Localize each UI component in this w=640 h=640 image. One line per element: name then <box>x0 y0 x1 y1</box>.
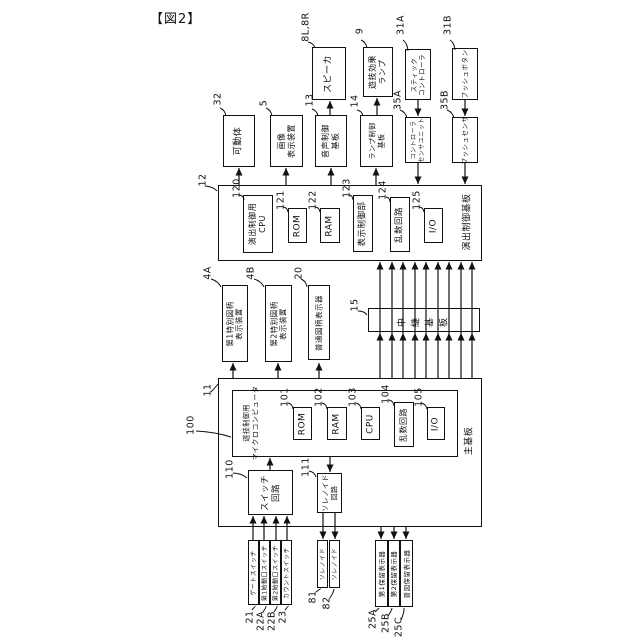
arrowhead <box>469 333 476 341</box>
ref-number-123: 123 <box>342 178 353 198</box>
arrowhead <box>373 168 380 176</box>
arrowhead <box>377 333 384 341</box>
arrowhead <box>412 333 419 341</box>
ref-number-35a: 35A <box>393 90 404 110</box>
ref-number-8l8r: 8L,8R <box>301 12 312 42</box>
ref-number-105: 105 <box>414 387 425 407</box>
ref-number-31b: 31B <box>443 15 454 35</box>
box-second-special-symbol-display: 第2特別図柄 表示装置 <box>265 285 292 362</box>
arrowhead <box>328 168 335 176</box>
box-label: 表示制御部 <box>358 201 369 246</box>
box-label: I/O <box>430 416 441 430</box>
ref-number-23: 23 <box>278 610 289 623</box>
effect-board-label: 演出制御基板 <box>462 193 473 250</box>
box-solenoid-81: ソレノイド <box>317 540 328 588</box>
box-normal-hold-display: 普図保留表示器 <box>400 540 413 607</box>
box-main-rom: ROM <box>293 407 312 440</box>
arrowhead <box>316 363 323 371</box>
box-sound-control-board: 音声制御 基板 <box>315 115 347 167</box>
ref-number-120: 120 <box>232 178 243 198</box>
rotated-char: 中 <box>397 313 408 327</box>
box-main-ram: RAM <box>327 407 347 440</box>
ref-number-110: 110 <box>225 459 236 479</box>
arrowhead <box>332 532 339 540</box>
arrowhead <box>469 262 476 270</box>
box-label: 第2始動口スイッチ <box>272 544 280 600</box>
patent-figure-2: 【図2】 スピーカ遊技効果 ランプスティック コントローラプッシュボタン可動体画… <box>0 0 640 640</box>
rotated-char: 板 <box>439 313 450 327</box>
box-relay-board: 中継基板 <box>368 308 480 332</box>
reference-leader <box>358 311 367 315</box>
box-count-switch: カウントスイッチ <box>281 540 292 605</box>
ref-number-25a: 25A <box>368 609 379 629</box>
box-label: 普通図柄表示器 <box>314 295 323 351</box>
box-image-display-device: 画像 表示装置 <box>270 115 303 167</box>
box-label: ランプ制御 基板 <box>368 122 386 159</box>
box-label: 第1特別図柄 表示装置 <box>226 301 245 346</box>
box-first-special-symbol-display: 第1特別図柄 表示装置 <box>222 285 248 362</box>
ref-number-122: 122 <box>308 190 319 210</box>
ref-number-125: 125 <box>412 190 423 210</box>
ref-number-11: 11 <box>203 383 214 396</box>
arrowhead <box>423 333 430 341</box>
box-label: スイッチ 回路 <box>260 474 281 510</box>
box-label: ソレノイド 回路 <box>321 474 339 512</box>
box-main-random-circuit: 乱数回路 <box>394 402 414 447</box>
box-effect-ram: RAM <box>320 208 340 243</box>
ref-number-5: 5 <box>259 100 270 107</box>
box-label: 可動体 <box>233 127 244 156</box>
box-stick-controller: スティック コントローラ <box>405 49 431 100</box>
box-solenoid-circuit: ソレノイド 回路 <box>317 473 342 513</box>
box-label: CPU <box>365 414 376 434</box>
ref-number-100: 100 <box>186 415 197 435</box>
box-label: 第2特別図柄 表示装置 <box>269 301 288 346</box>
reference-leader <box>252 606 255 610</box>
arrowhead <box>458 333 465 341</box>
box-first-start-switch: 第1始動口スイッチ <box>259 540 270 605</box>
box-effect-control-cpu: 演出制御用 CPU <box>243 195 273 253</box>
reference-leader <box>254 279 264 287</box>
ref-number-25b: 25B <box>381 613 392 633</box>
box-label: 乱数回路 <box>395 206 406 242</box>
ref-number-103: 103 <box>348 387 359 407</box>
box-movable-body: 可動体 <box>223 115 255 167</box>
box-label: ROM <box>292 214 303 237</box>
box-effect-rom: ROM <box>288 208 307 243</box>
box-label: RAM <box>331 413 342 434</box>
arrowhead <box>400 262 407 270</box>
arrowhead <box>236 168 243 176</box>
ref-number-82: 82 <box>322 596 333 609</box>
ref-number-14: 14 <box>350 94 361 107</box>
box-switch-circuit: スイッチ 回路 <box>248 470 293 515</box>
box-speaker: スピーカ <box>312 47 346 100</box>
arrowhead <box>320 532 327 540</box>
ref-number-13: 13 <box>305 93 316 106</box>
box-label: 第2保留表示器 <box>390 550 398 597</box>
box-push-button: プッシュボタン <box>452 48 478 100</box>
box-label: RAM <box>324 215 335 236</box>
ref-number-22b: 22B <box>267 611 278 631</box>
box-label: ROM <box>297 412 308 435</box>
arrowhead <box>230 363 237 371</box>
arrowhead <box>446 262 453 270</box>
box-label: ソレノイド <box>319 548 327 581</box>
box-label: 遊技効果 ランプ <box>368 55 388 89</box>
arrowhead <box>374 98 381 106</box>
box-game-effect-lamp: 遊技効果 ランプ <box>363 47 393 97</box>
box-label: 普図保留表示器 <box>402 549 410 598</box>
box-label: 音声制御 基板 <box>321 124 341 158</box>
box-normal-symbol-display: 普通図柄表示器 <box>308 285 330 360</box>
box-lamp-control-board: ランプ制御 基板 <box>360 115 393 167</box>
ref-number-35b: 35B <box>440 90 451 110</box>
ref-number-15: 15 <box>350 298 361 311</box>
box-controller-sensor-unit: コントローラ センサユニット <box>405 117 431 163</box>
figure-title: 【図2】 <box>150 8 201 27</box>
box-label: コントローラ センサユニット <box>411 117 426 163</box>
box-label: スピーカ <box>323 54 334 92</box>
box-label: ゲートスイッチ <box>250 550 258 596</box>
box-label: プッシュボタン <box>461 50 469 99</box>
arrowhead <box>327 101 334 109</box>
reference-leader <box>205 186 217 191</box>
box-push-sensor: プッシュセンサ <box>452 117 478 163</box>
arrowhead <box>415 177 422 185</box>
ref-number-4b: 4B <box>246 266 257 280</box>
arrowhead <box>400 333 407 341</box>
box-label: ソレノイド <box>331 548 339 581</box>
box-label: 第1保留表示器 <box>377 550 385 597</box>
ref-number-102: 102 <box>314 387 325 407</box>
arrowhead <box>389 333 396 341</box>
box-effect-io: I/O <box>424 208 443 243</box>
arrowhead <box>462 177 469 185</box>
ref-number-21: 21 <box>245 610 256 623</box>
ref-number-12: 12 <box>198 173 209 186</box>
arrowhead <box>378 532 385 540</box>
reference-leader <box>285 606 288 610</box>
box-solenoid-82: ソレノイド <box>329 540 340 588</box>
ref-number-25c: 25C <box>394 617 405 637</box>
rotated-char: 継 <box>411 313 422 327</box>
ref-number-31a: 31A <box>396 15 407 35</box>
box-main-io: I/O <box>427 407 445 440</box>
microcomputer-label: 遊技制御用 マイクロコンピュータ <box>242 386 260 461</box>
box-label: 画像 表示装置 <box>277 124 297 158</box>
box-label: 第1始動口スイッチ <box>261 544 269 600</box>
reference-leader <box>211 279 221 287</box>
ref-number-124: 124 <box>378 180 389 200</box>
box-first-hold-display: 第1保留表示器 <box>375 540 388 607</box>
arrowhead <box>389 262 396 270</box>
ref-number-121: 121 <box>276 190 287 210</box>
main-board-label: 主基板 <box>464 427 475 456</box>
arrowhead <box>415 109 422 117</box>
arrowhead <box>377 262 384 270</box>
box-label: スティック コントローラ <box>410 54 426 96</box>
box-second-start-switch: 第2始動口スイッチ <box>270 540 281 605</box>
arrowhead <box>403 532 410 540</box>
arrowhead <box>458 262 465 270</box>
box-display-control-unit: 表示制御部 <box>353 195 373 252</box>
ref-number-111: 111 <box>301 457 312 477</box>
box-label: プッシュセンサ <box>461 116 469 165</box>
box-label: 乱数回路 <box>399 408 409 442</box>
arrowhead <box>446 333 453 341</box>
box-label: 中継基板 <box>396 314 452 325</box>
box-effect-random-circuit: 乱数回路 <box>390 197 410 252</box>
ref-number-4a: 4A <box>203 266 214 280</box>
ref-number-81: 81 <box>308 590 319 603</box>
box-gate-switch: ゲートスイッチ <box>248 540 259 605</box>
rotated-char: 基 <box>425 313 436 327</box>
box-main-cpu: CPU <box>361 407 380 440</box>
ref-number-20: 20 <box>294 266 305 279</box>
box-label: 演出制御用 CPU <box>248 203 268 246</box>
reference-leader <box>301 279 307 287</box>
arrowhead <box>423 262 430 270</box>
arrowhead <box>435 333 442 341</box>
arrowhead <box>283 168 290 176</box>
arrowhead <box>391 532 398 540</box>
ref-number-104: 104 <box>381 384 392 404</box>
ref-number-9: 9 <box>355 28 366 35</box>
ref-number-22a: 22A <box>256 611 267 631</box>
box-label: I/O <box>428 218 439 232</box>
arrowhead <box>412 262 419 270</box>
ref-number-101: 101 <box>280 387 291 407</box>
arrowhead <box>275 363 282 371</box>
ref-number-32: 32 <box>213 92 224 105</box>
box-label: カウントスイッチ <box>283 546 291 598</box>
box-second-hold-display: 第2保留表示器 <box>388 540 400 607</box>
arrowhead <box>435 262 442 270</box>
